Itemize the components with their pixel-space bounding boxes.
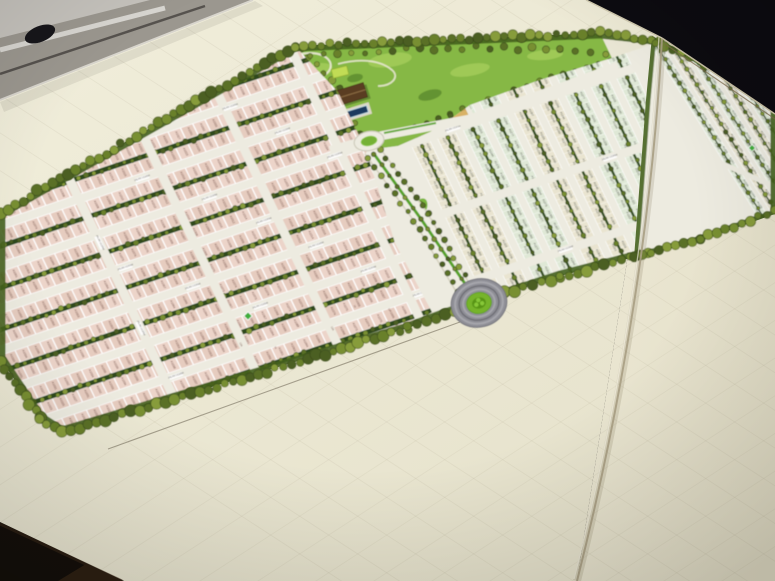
- photo-of-site-plan-on-notebook: A1005A1006A1007A1008A1009A1010A1012A1014…: [0, 0, 775, 581]
- photo-vignette: [0, 0, 775, 581]
- site-plan-photo: A1005A1006A1007A1008A1009A1010A1012A1014…: [0, 0, 775, 581]
